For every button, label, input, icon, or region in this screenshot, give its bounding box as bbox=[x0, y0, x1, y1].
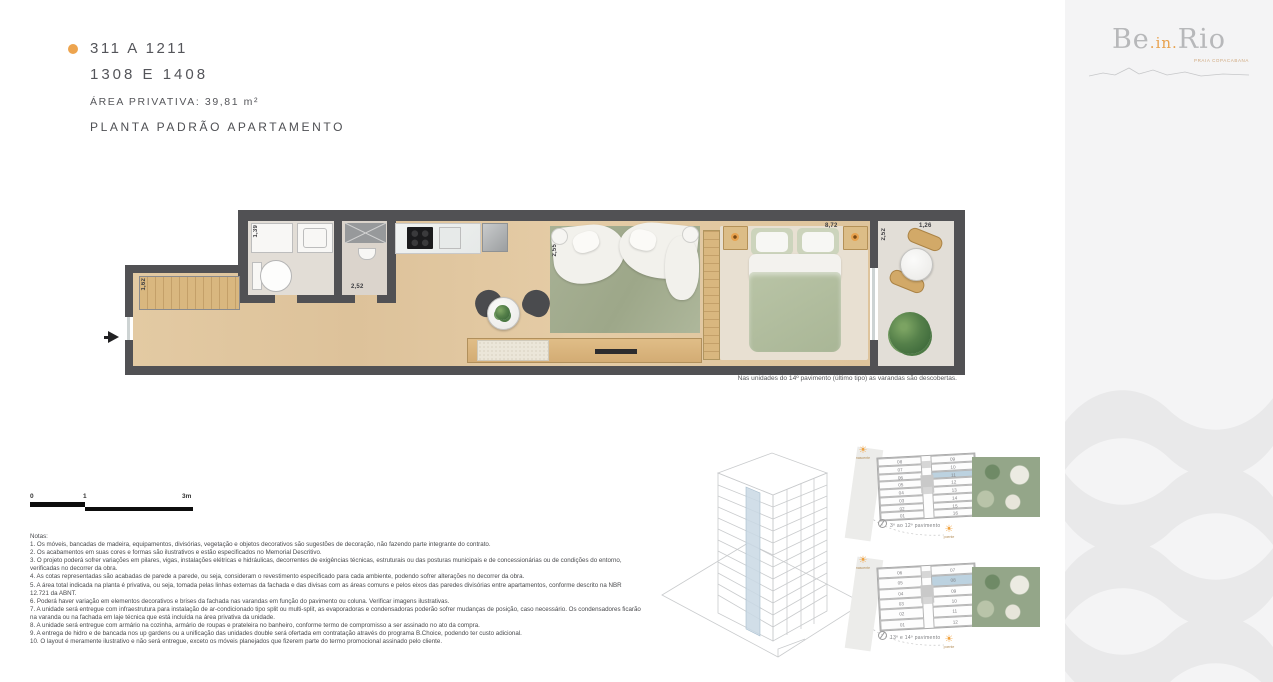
site-map bbox=[972, 457, 1040, 517]
keyplan-unit-12: 12 bbox=[933, 615, 977, 628]
logo: Be.in.Rio PRAIA COPACABANA bbox=[1065, 24, 1273, 75]
wall-balcony-upper bbox=[870, 210, 878, 268]
bedroom-wardrobe bbox=[703, 230, 720, 360]
highlighted-column bbox=[746, 487, 760, 636]
unit-range-line2: 1308 E 1408 bbox=[68, 66, 345, 83]
entry-arrow-icon bbox=[108, 331, 125, 343]
wall-bath-bottom-b bbox=[297, 295, 355, 303]
lamp-icon bbox=[851, 233, 859, 241]
notes-title: Notas: bbox=[30, 533, 642, 541]
sun-east-icon: ☀ nascente bbox=[850, 446, 876, 461]
keyplan-caption: 13º e 14º pavimento bbox=[878, 631, 941, 641]
note-item: 7. A unidade será entregue com infraestr… bbox=[30, 606, 642, 622]
shaft-box bbox=[345, 223, 386, 243]
logo-wordmark: Be.in.Rio bbox=[1112, 24, 1226, 55]
kitchen-sink bbox=[439, 227, 461, 249]
brand-panel: Be.in.Rio PRAIA COPACABANA bbox=[1065, 0, 1273, 682]
scale-3m: 3m bbox=[182, 493, 191, 500]
wave-pattern bbox=[1065, 382, 1273, 682]
sofa-chaise bbox=[665, 236, 699, 300]
keyplan-floors-13-14: 060504030201 070809101112 ☀ nascente ☀ p… bbox=[848, 553, 1044, 665]
sun-east-icon: ☀ nascente bbox=[850, 556, 876, 571]
unit-grid: 0807060504030201 0910111213141516 bbox=[876, 452, 978, 521]
note-item: 4. As cotas representadas são acabadas d… bbox=[30, 573, 642, 581]
plan-footnote: Nas unidades do 14º pavimento (último ti… bbox=[738, 375, 957, 382]
table-plant bbox=[495, 305, 510, 320]
side-table bbox=[682, 226, 699, 243]
keyplan-unit-01: 01 bbox=[880, 618, 924, 631]
note-item: 1. Os móveis, bancadas de madeira, equip… bbox=[30, 541, 642, 549]
bed-duvet bbox=[749, 272, 841, 352]
dim-balcony-depth: 2,52 bbox=[881, 228, 887, 240]
wall-top-entry bbox=[125, 265, 246, 273]
dim-bath: 1,39 bbox=[253, 225, 259, 237]
sun-glyph: ☀ bbox=[850, 446, 876, 456]
wall-bath-bottom-a bbox=[238, 295, 275, 303]
keyplan-caption: 3º ao 12º pavimento bbox=[878, 519, 941, 529]
private-area-label: ÁREA PRIVATIVA: 39,81 m² bbox=[68, 96, 345, 108]
building-wireframe bbox=[660, 443, 865, 661]
unit-range-text2: 1308 E 1408 bbox=[90, 66, 208, 83]
entry-closet bbox=[139, 276, 240, 310]
logo-part-in: .in. bbox=[1150, 34, 1178, 52]
toilet-bowl bbox=[260, 260, 292, 292]
unit-range-text: 311 A 1211 bbox=[90, 40, 188, 57]
wall-right bbox=[954, 210, 965, 375]
mountain-skyline-icon bbox=[1089, 63, 1249, 79]
dim-living: 2,55 bbox=[552, 244, 558, 256]
unit-range-line1: 311 A 1211 bbox=[68, 40, 345, 57]
legal-notes: Notas: 1. Os móveis, bancadas de madeira… bbox=[30, 533, 642, 646]
scale-bar-segment-1 bbox=[30, 502, 85, 507]
dim-closet: 1,62 bbox=[141, 278, 147, 290]
unit-column-right: 0910111213141516 bbox=[930, 454, 977, 518]
note-item: 8. A unidade será entregue com armário n… bbox=[30, 622, 642, 630]
floor-plan: 1,62 1,39 2,52 2,55 8,72 2,52 1,26 bbox=[125, 210, 965, 375]
tv bbox=[595, 349, 637, 354]
cane-bench bbox=[477, 340, 549, 361]
unit-header: 311 A 1211 1308 E 1408 ÁREA PRIVATIVA: 3… bbox=[68, 40, 345, 134]
unit-grid: 060504030201 070809101112 bbox=[876, 562, 978, 631]
scale-bar-segment-2 bbox=[85, 507, 193, 512]
bed-pillow-white bbox=[802, 232, 834, 252]
side-table bbox=[551, 228, 568, 245]
note-item: 10. O layout é meramente ilustrativo e n… bbox=[30, 638, 642, 646]
logo-subtitle: PRAIA COPACABANA bbox=[1194, 58, 1249, 63]
entry-door-leaf bbox=[127, 317, 130, 340]
brochure-page: Be.in.Rio PRAIA COPACABANA 311 A 1211 13… bbox=[0, 0, 1273, 682]
caption-text: 13º e 14º pavimento bbox=[890, 635, 941, 641]
dim-bedroom: 8,72 bbox=[825, 223, 837, 229]
note-item: 6. Poderá haver variação em elementos de… bbox=[30, 598, 642, 606]
note-item: 9. A entrega de hidro e de bancada nos u… bbox=[30, 630, 642, 638]
logo-part-rio: Rio bbox=[1178, 24, 1226, 55]
sun-label: nascente bbox=[850, 567, 876, 571]
balcony-plant bbox=[889, 312, 931, 354]
caption-text: 3º ao 12º pavimento bbox=[890, 523, 941, 529]
balcony-glass-door bbox=[872, 268, 875, 340]
north-icon bbox=[878, 519, 887, 528]
notes-list: 1. Os móveis, bancadas de madeira, equip… bbox=[30, 541, 642, 646]
note-item: 3. O projeto poderá sofrer variações em … bbox=[30, 557, 642, 573]
dim-service: 2,52 bbox=[351, 284, 363, 290]
sun-label: poente bbox=[936, 646, 962, 650]
logo-part-be: Be bbox=[1112, 24, 1150, 55]
wall-bath-divider bbox=[334, 210, 342, 303]
sun-label: poente bbox=[936, 536, 962, 540]
unit-column-left: 060504030201 bbox=[877, 566, 924, 630]
note-item: 5. A área total indicada na planta é pri… bbox=[30, 582, 642, 598]
site-map bbox=[972, 567, 1040, 627]
wall-balcony-lower bbox=[870, 340, 878, 370]
page-title: PLANTA PADRÃO APARTAMENTO bbox=[68, 120, 345, 134]
note-item: 2. Os acabamentos em suas cores e formas… bbox=[30, 549, 642, 557]
wall-left-upper bbox=[125, 265, 133, 317]
dim-balcony-width: 1,26 bbox=[919, 223, 931, 229]
scale-1: 1 bbox=[83, 493, 87, 500]
lamp-icon bbox=[731, 233, 739, 241]
orange-bullet-icon bbox=[68, 44, 78, 54]
wall-bottom bbox=[125, 366, 965, 375]
unit-column-right: 070809101112 bbox=[930, 564, 977, 628]
keyplan-floors-3-12: 0807060504030201 0910111213141516 ☀ nasc… bbox=[848, 443, 1044, 555]
bed-pillow-white bbox=[756, 232, 788, 252]
balcony-table bbox=[900, 248, 933, 281]
cooktop bbox=[407, 227, 433, 249]
scale-0: 0 bbox=[30, 493, 34, 500]
wall-top bbox=[238, 210, 965, 221]
sun-label: nascente bbox=[850, 457, 876, 461]
unit-column-left: 0807060504030201 bbox=[877, 456, 924, 520]
north-icon bbox=[878, 631, 887, 640]
keyplan-unit-16: 16 bbox=[933, 508, 977, 518]
bath-sink-basin bbox=[303, 228, 327, 248]
scale-bar: 0 1 3m bbox=[30, 493, 195, 513]
sun-glyph: ☀ bbox=[850, 556, 876, 566]
exterior-mask bbox=[125, 210, 238, 265]
fridge bbox=[482, 223, 508, 252]
